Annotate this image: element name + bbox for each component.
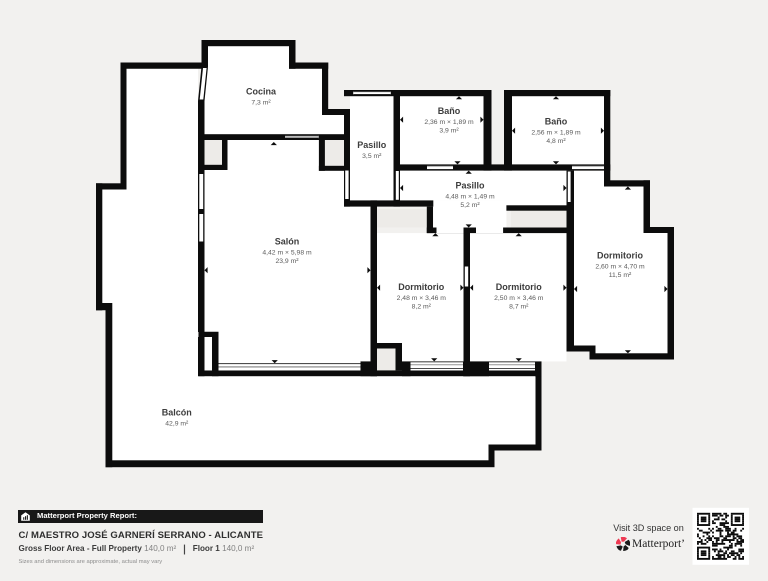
svg-text:5,2 m²: 5,2 m² (460, 202, 480, 209)
svg-text:7,3 m²: 7,3 m² (251, 99, 271, 106)
svg-text:2,60 m × 4,70 m: 2,60 m × 4,70 m (595, 263, 645, 270)
svg-text:Pasillo: Pasillo (357, 140, 387, 150)
svg-text:23,9 m²: 23,9 m² (275, 258, 299, 265)
svg-text:Baño: Baño (545, 117, 568, 127)
svg-text:4,8 m²: 4,8 m² (546, 138, 566, 145)
svg-text:2,56 m × 1,89 m: 2,56 m × 1,89 m (531, 129, 581, 136)
svg-text:8,2 m²: 8,2 m² (412, 304, 432, 311)
svg-text:3,9 m²: 3,9 m² (439, 127, 459, 134)
svg-text:11,5 m²: 11,5 m² (609, 272, 632, 279)
svg-text:Dormitorio: Dormitorio (597, 251, 644, 261)
svg-text:Balcón: Balcón (162, 408, 192, 418)
svg-text:Baño: Baño (438, 106, 461, 116)
svg-text:4,42 m × 5,98 m: 4,42 m × 5,98 m (262, 250, 312, 257)
svg-text:42,9 m²: 42,9 m² (165, 420, 189, 427)
svg-text:Dormitorio: Dormitorio (398, 282, 445, 292)
svg-text:3,5 m²: 3,5 m² (362, 153, 382, 160)
svg-text:2,36 m × 1,89 m: 2,36 m × 1,89 m (424, 119, 474, 126)
svg-text:Salón: Salón (275, 237, 300, 247)
svg-text:Dormitorio: Dormitorio (496, 282, 543, 292)
svg-text:Pasillo: Pasillo (455, 181, 485, 191)
svg-text:Cocina: Cocina (246, 87, 277, 97)
svg-text:2,50 m × 3,46 m: 2,50 m × 3,46 m (494, 295, 544, 302)
svg-text:8,7 m²: 8,7 m² (509, 304, 529, 311)
svg-text:2,48 m × 3,46 m: 2,48 m × 3,46 m (397, 295, 447, 302)
svg-text:4,48 m × 1,49 m: 4,48 m × 1,49 m (445, 193, 495, 200)
